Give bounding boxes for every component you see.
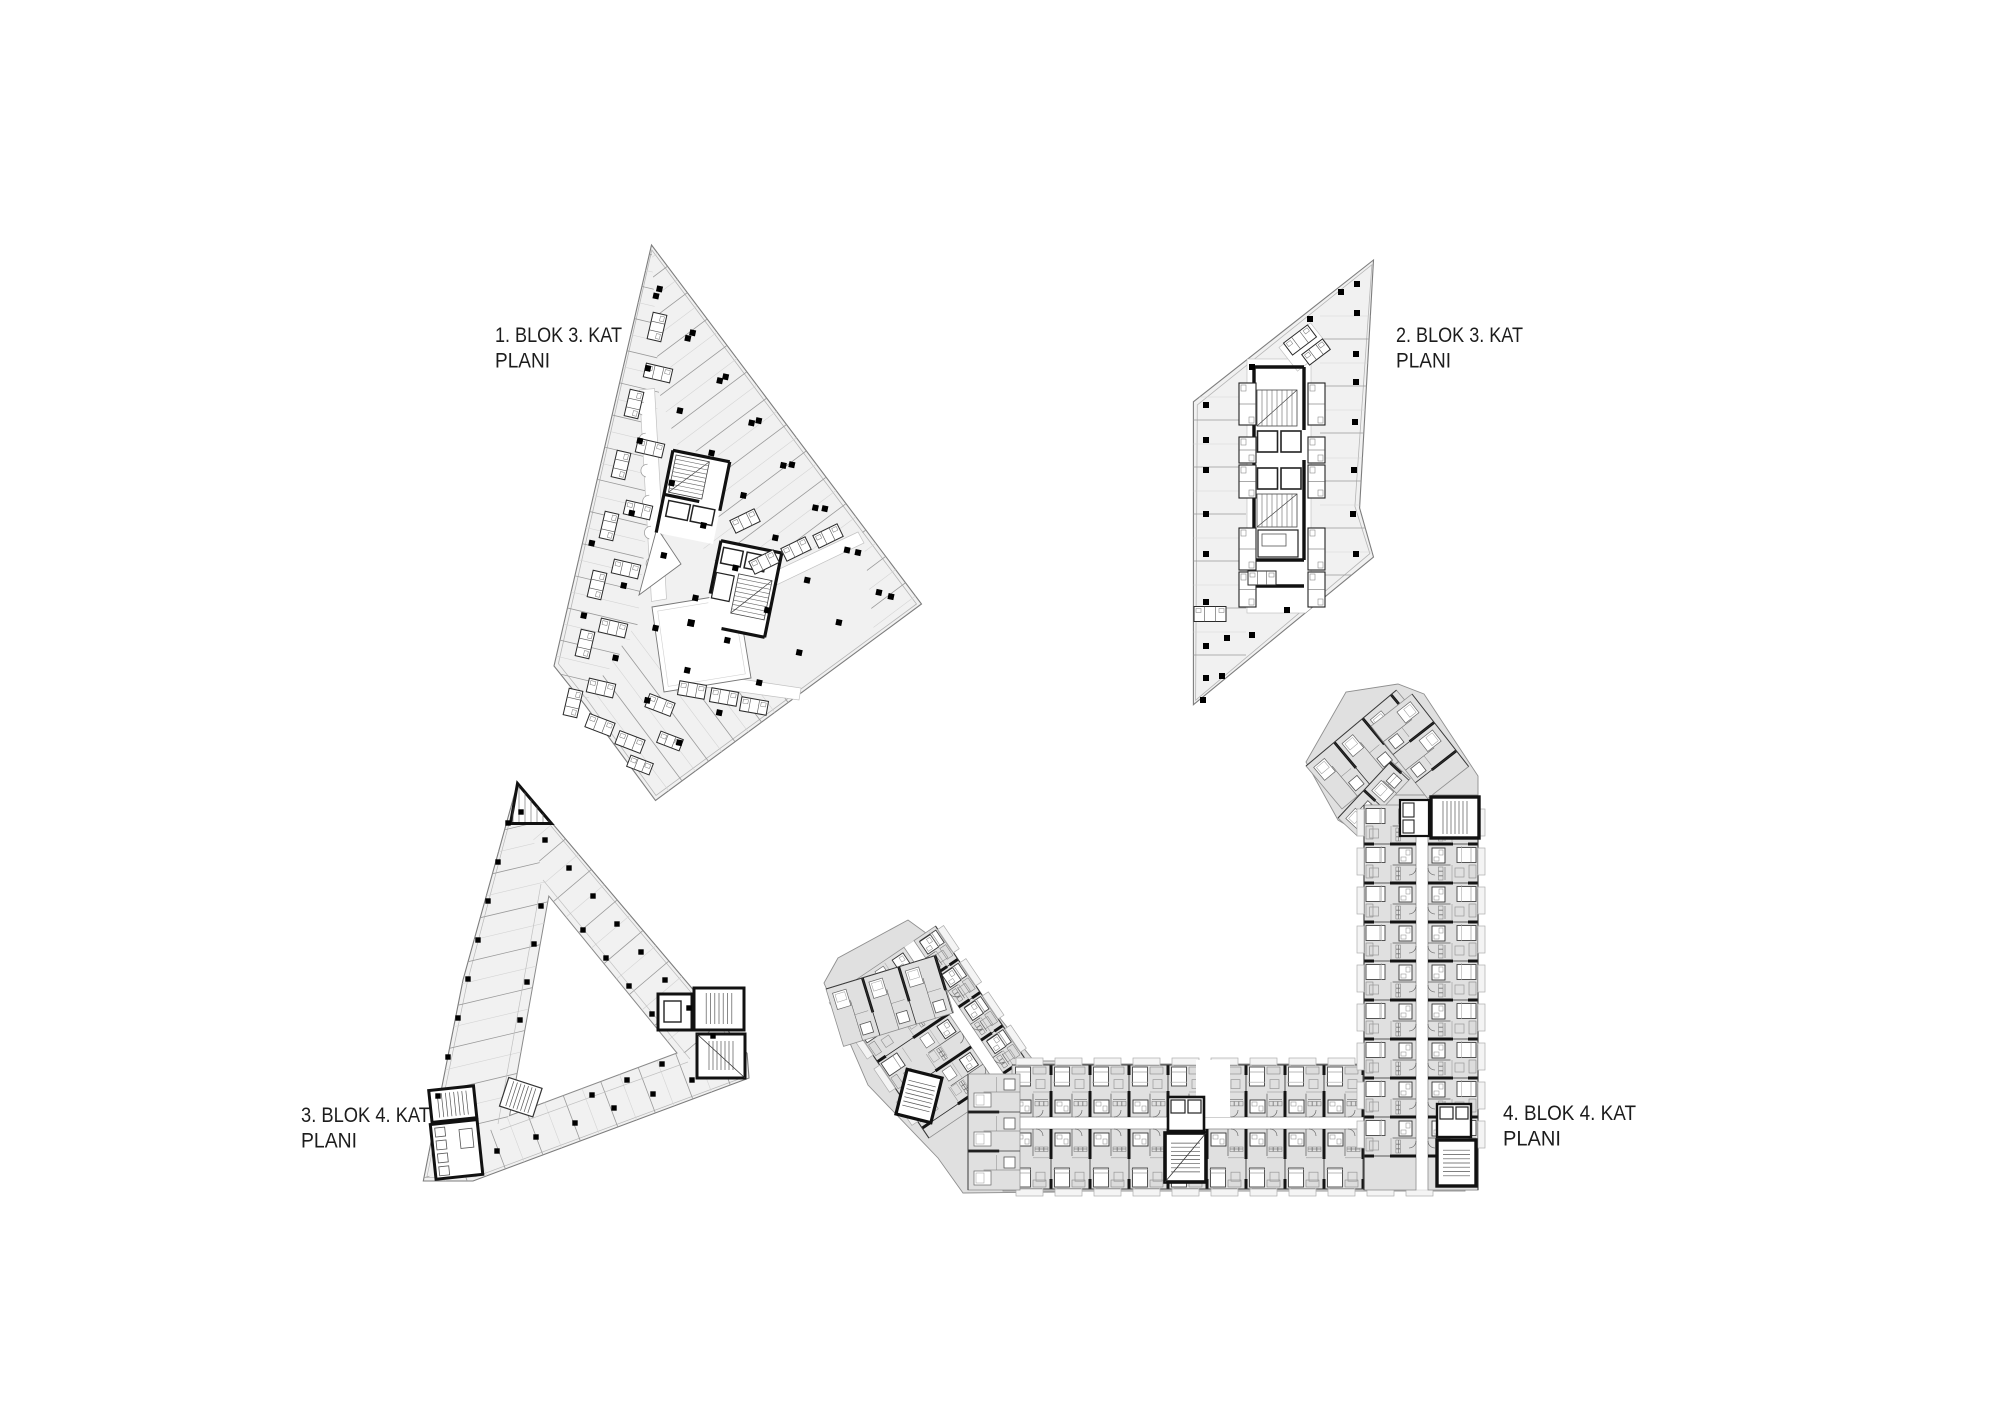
svg-text:1. BLOK 3. KAT: 1. BLOK 3. KAT — [495, 323, 622, 347]
svg-text:PLANI: PLANI — [301, 1129, 357, 1153]
svg-text:PLANI: PLANI — [1503, 1127, 1561, 1151]
svg-text:3. BLOK 4. KAT: 3. BLOK 4. KAT — [301, 1103, 430, 1127]
svg-text:PLANI: PLANI — [495, 349, 550, 373]
svg-text:2. BLOK 3. KAT: 2. BLOK 3. KAT — [1396, 323, 1523, 347]
svg-text:PLANI: PLANI — [1396, 349, 1451, 373]
svg-text:4. BLOK 4. KAT: 4. BLOK 4. KAT — [1503, 1101, 1636, 1125]
